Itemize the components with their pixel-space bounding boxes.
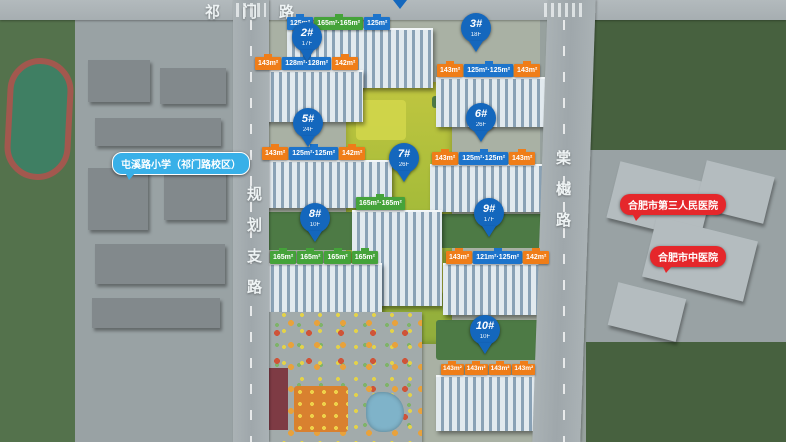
pin-tail — [300, 50, 314, 61]
pin-floors: 17F — [484, 217, 494, 223]
pin-floors: 18F — [471, 32, 481, 38]
pin-tail — [474, 131, 488, 142]
chips-building-6: 143m² 125m²·125m² 143m² — [432, 152, 535, 165]
area-chip: 121m²·125m² — [473, 251, 522, 264]
road-name-right: 棠樾路 — [552, 150, 573, 243]
tower-8 — [266, 263, 382, 315]
area-chip: 142m² — [332, 57, 358, 70]
pin-building-8[interactable]: 8# 10F — [300, 203, 330, 242]
pin-head: 8# 10F — [300, 203, 330, 233]
area-chip: 143m² — [441, 364, 464, 375]
poi-school-label[interactable]: 屯溪路小学（祁门路校区） — [112, 152, 250, 175]
area-chip: 125m² — [364, 17, 390, 30]
chips-building-5: 143m² 125m²·125m² 142m² — [262, 147, 365, 160]
right-greenbelt-top — [586, 18, 786, 158]
area-chip: 125m²·125m² — [459, 152, 508, 165]
playground — [294, 386, 348, 432]
pin-building-2[interactable]: 2# 17F — [292, 22, 322, 61]
pin-building-9[interactable]: 9# 17F — [474, 198, 504, 237]
area-chip: 125m²·125m² — [464, 64, 513, 77]
area-chip: 143m² — [432, 152, 458, 165]
pin-number: 6# — [475, 109, 487, 120]
poi-hospital-3rd-label[interactable]: 合肥市第三人民医院 — [620, 194, 726, 215]
area-chip: 165m² — [270, 251, 296, 264]
pin-tip-top-building — [393, 0, 407, 9]
pin-number: 7# — [398, 149, 410, 160]
school-building — [88, 60, 150, 102]
area-chip: 143m² — [465, 364, 488, 375]
stadium-track — [3, 56, 75, 181]
pin-building-7[interactable]: 7# 26F — [389, 143, 419, 182]
pin-number: 5# — [302, 114, 314, 125]
pin-building-5[interactable]: 5# 24F — [293, 108, 323, 147]
pin-floors: 26F — [476, 122, 486, 128]
pin-tail — [397, 171, 411, 182]
chips-building-8: 165m² 165m² 165m² 165m² — [270, 251, 378, 264]
pin-head: 7# 26F — [389, 143, 419, 173]
pin-number: 8# — [309, 209, 321, 220]
area-chip: 143m² — [512, 364, 535, 375]
chips-building-3: 143m² 125m²·125m² 143m² — [437, 64, 540, 77]
area-chip: 143m² — [255, 57, 281, 70]
masterplan-aerial-map: 祁门路 规划支路 棠樾路 2# 17F 3# 18F 5# 24F 6# 26F… — [0, 0, 786, 442]
pin-head: 9# 17F — [474, 198, 504, 228]
pin-number: 10# — [476, 321, 494, 332]
pin-tail — [301, 136, 315, 147]
pin-head: 6# 26F — [466, 103, 496, 133]
pin-tail — [478, 343, 492, 354]
tower-10 — [436, 375, 536, 431]
pin-building-6[interactable]: 6# 26F — [466, 103, 496, 142]
pin-tail — [308, 231, 322, 242]
pin-floors: 26F — [399, 162, 409, 168]
poi-tcm-hospital-label[interactable]: 合肥市中医院 — [650, 246, 726, 267]
road-name-left: 规划支路 — [243, 186, 264, 310]
pin-number: 2# — [301, 28, 313, 39]
area-chip: 165m² — [324, 251, 350, 264]
school-building — [95, 244, 225, 284]
area-chip: 142m² — [523, 251, 549, 264]
pin-floors: 10F — [310, 222, 320, 228]
pin-head: 3# 18F — [461, 13, 491, 43]
pin-number: 3# — [470, 19, 482, 30]
area-chip: 143m² — [489, 364, 512, 375]
school-building — [95, 118, 221, 146]
chips-building-9: 143m² 121m²·125m² 142m² — [446, 251, 549, 264]
park-lawn — [356, 100, 406, 140]
area-chip: 165m²·165m² — [356, 197, 405, 210]
school-building — [160, 68, 226, 104]
right-greenbelt-bottom — [586, 342, 786, 442]
area-chip: 143m² — [437, 64, 463, 77]
chips-building-7: 165m²·165m² — [356, 197, 405, 210]
pin-building-10[interactable]: 10# 10F — [470, 315, 500, 354]
area-chip: 143m² — [262, 147, 288, 160]
school-building — [88, 168, 148, 230]
area-chip: 143m² — [514, 64, 540, 77]
pin-building-3[interactable]: 3# 18F — [461, 13, 491, 52]
crosswalk — [544, 3, 584, 17]
pin-head: 10# 10F — [470, 315, 500, 345]
area-chip: 143m² — [446, 251, 472, 264]
area-chip: 165m² — [297, 251, 323, 264]
pin-floors: 17F — [302, 41, 312, 47]
pin-tail — [469, 41, 483, 52]
area-chip: 125m²·125m² — [289, 147, 338, 160]
area-chip: 142m² — [339, 147, 365, 160]
area-chip: 143m² — [509, 152, 535, 165]
pin-floors: 10F — [480, 334, 490, 340]
chips-building-10: 143m² 143m² 143m² 143m² — [441, 364, 535, 375]
school-building — [92, 298, 220, 328]
pin-head: 5# 24F — [293, 108, 323, 138]
pin-head: 2# 17F — [292, 22, 322, 52]
pin-number: 9# — [483, 204, 495, 215]
pond — [366, 392, 404, 432]
area-chip: 165m² — [352, 251, 378, 264]
pin-floors: 24F — [303, 127, 313, 133]
pin-tail — [482, 226, 496, 237]
